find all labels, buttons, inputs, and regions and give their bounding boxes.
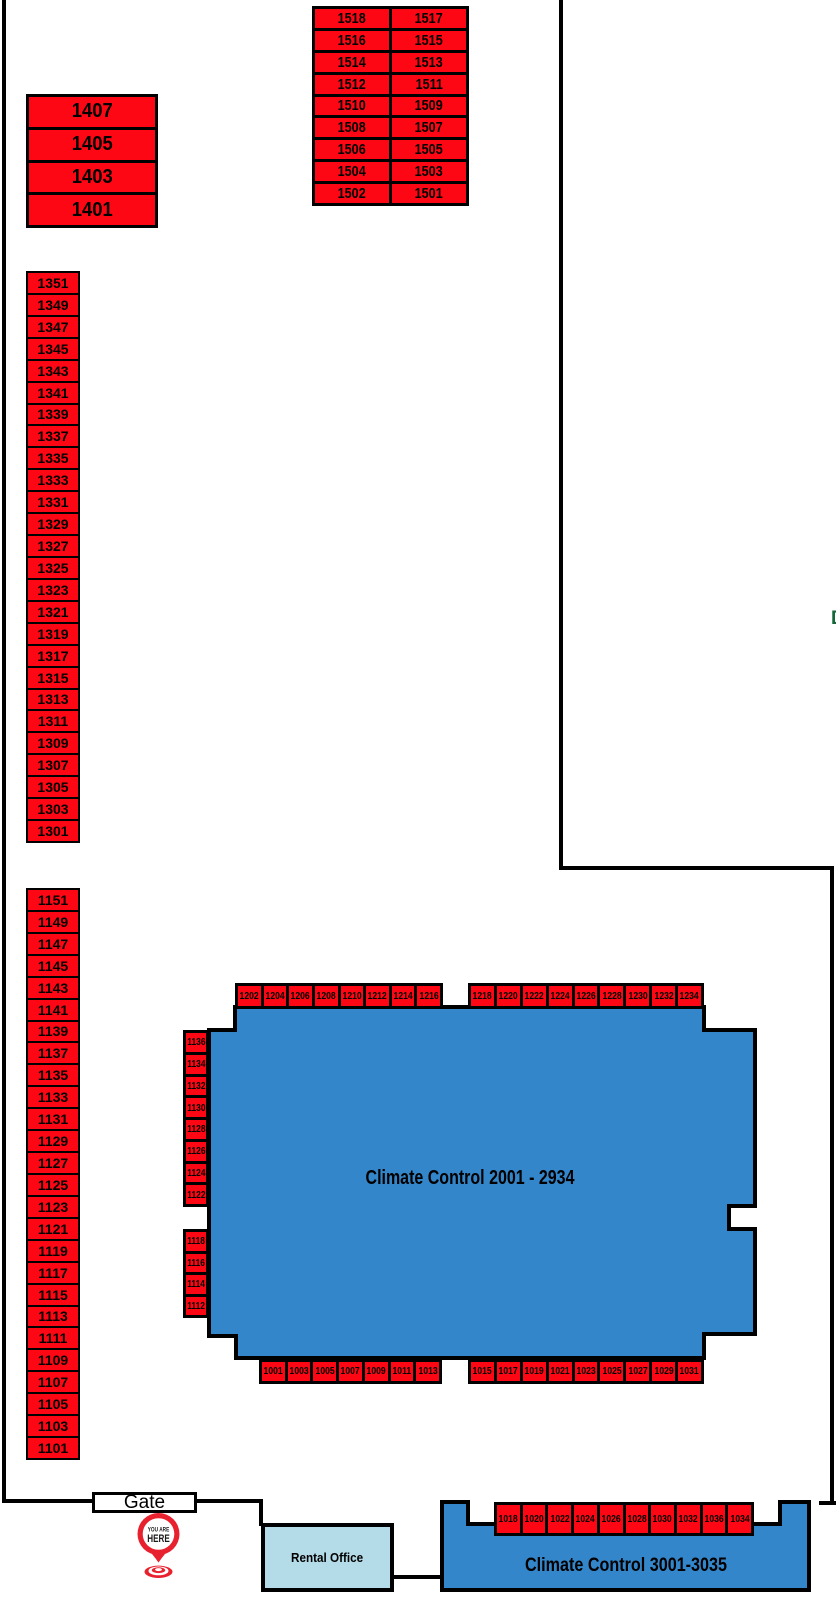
svg-text:HERE: HERE <box>147 1533 170 1545</box>
